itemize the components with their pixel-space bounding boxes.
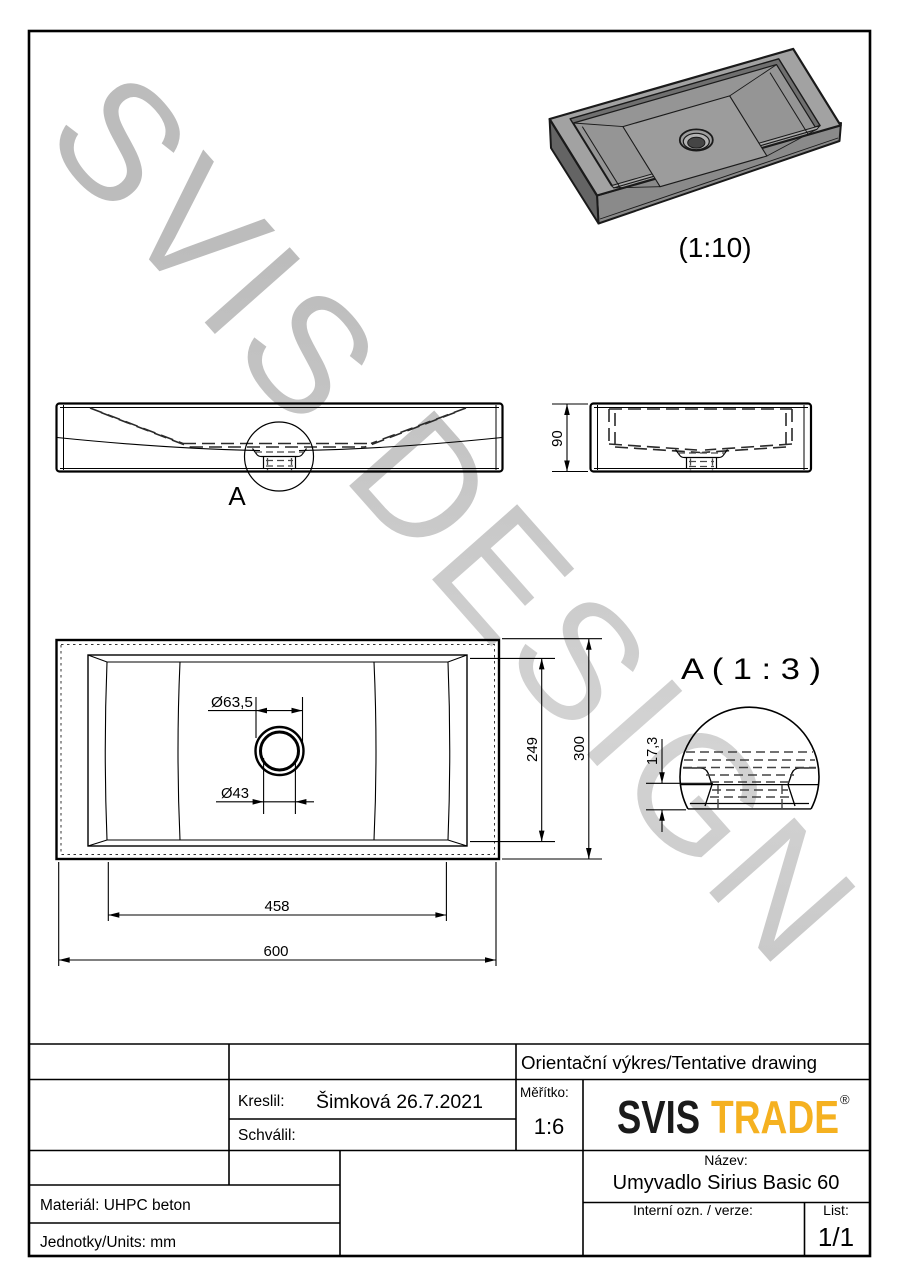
svg-text:A ( 1 : 3 ): A ( 1 : 3 ) bbox=[681, 653, 821, 686]
svg-text:®: ® bbox=[840, 1092, 850, 1107]
svg-text:SVIS DESIGN: SVIS DESIGN bbox=[15, 38, 895, 999]
svg-text:(1:10): (1:10) bbox=[678, 232, 751, 263]
svg-text:600: 600 bbox=[263, 943, 288, 960]
svg-text:Měřítko:: Měřítko: bbox=[520, 1085, 569, 1100]
svg-text:300: 300 bbox=[571, 736, 588, 761]
svg-text:249: 249 bbox=[524, 737, 541, 762]
svg-text:TRADE: TRADE bbox=[711, 1091, 839, 1143]
svg-text:458: 458 bbox=[264, 898, 289, 915]
svg-text:Šimková 26.7.2021: Šimková 26.7.2021 bbox=[316, 1090, 483, 1113]
svg-text:List:: List: bbox=[823, 1202, 849, 1218]
svg-text:Interní ozn. / verze:: Interní ozn. / verze: bbox=[633, 1202, 753, 1218]
svg-text:Ø63,5: Ø63,5 bbox=[211, 695, 253, 711]
svg-text:1:6: 1:6 bbox=[534, 1114, 565, 1139]
svg-text:17,3: 17,3 bbox=[645, 737, 661, 765]
svg-text:Materiál: UHPC beton: Materiál: UHPC beton bbox=[40, 1197, 191, 1214]
svg-text:90: 90 bbox=[549, 430, 566, 447]
svg-text:Název:: Název: bbox=[704, 1152, 748, 1168]
svg-text:Ø43: Ø43 bbox=[221, 786, 249, 802]
svg-text:SVIS: SVIS bbox=[617, 1091, 700, 1143]
svg-text:Umyvadlo Sirius Basic 60: Umyvadlo Sirius Basic 60 bbox=[613, 1172, 840, 1194]
svg-text:Orientační výkres/Tentative dr: Orientační výkres/Tentative drawing bbox=[521, 1053, 817, 1073]
svg-text:A: A bbox=[228, 481, 246, 511]
svg-text:Schválil:: Schválil: bbox=[238, 1127, 296, 1144]
svg-text:Kreslil:: Kreslil: bbox=[238, 1093, 285, 1110]
svg-text:1/1: 1/1 bbox=[818, 1222, 854, 1252]
svg-text:Jednotky/Units: mm: Jednotky/Units: mm bbox=[40, 1234, 176, 1251]
